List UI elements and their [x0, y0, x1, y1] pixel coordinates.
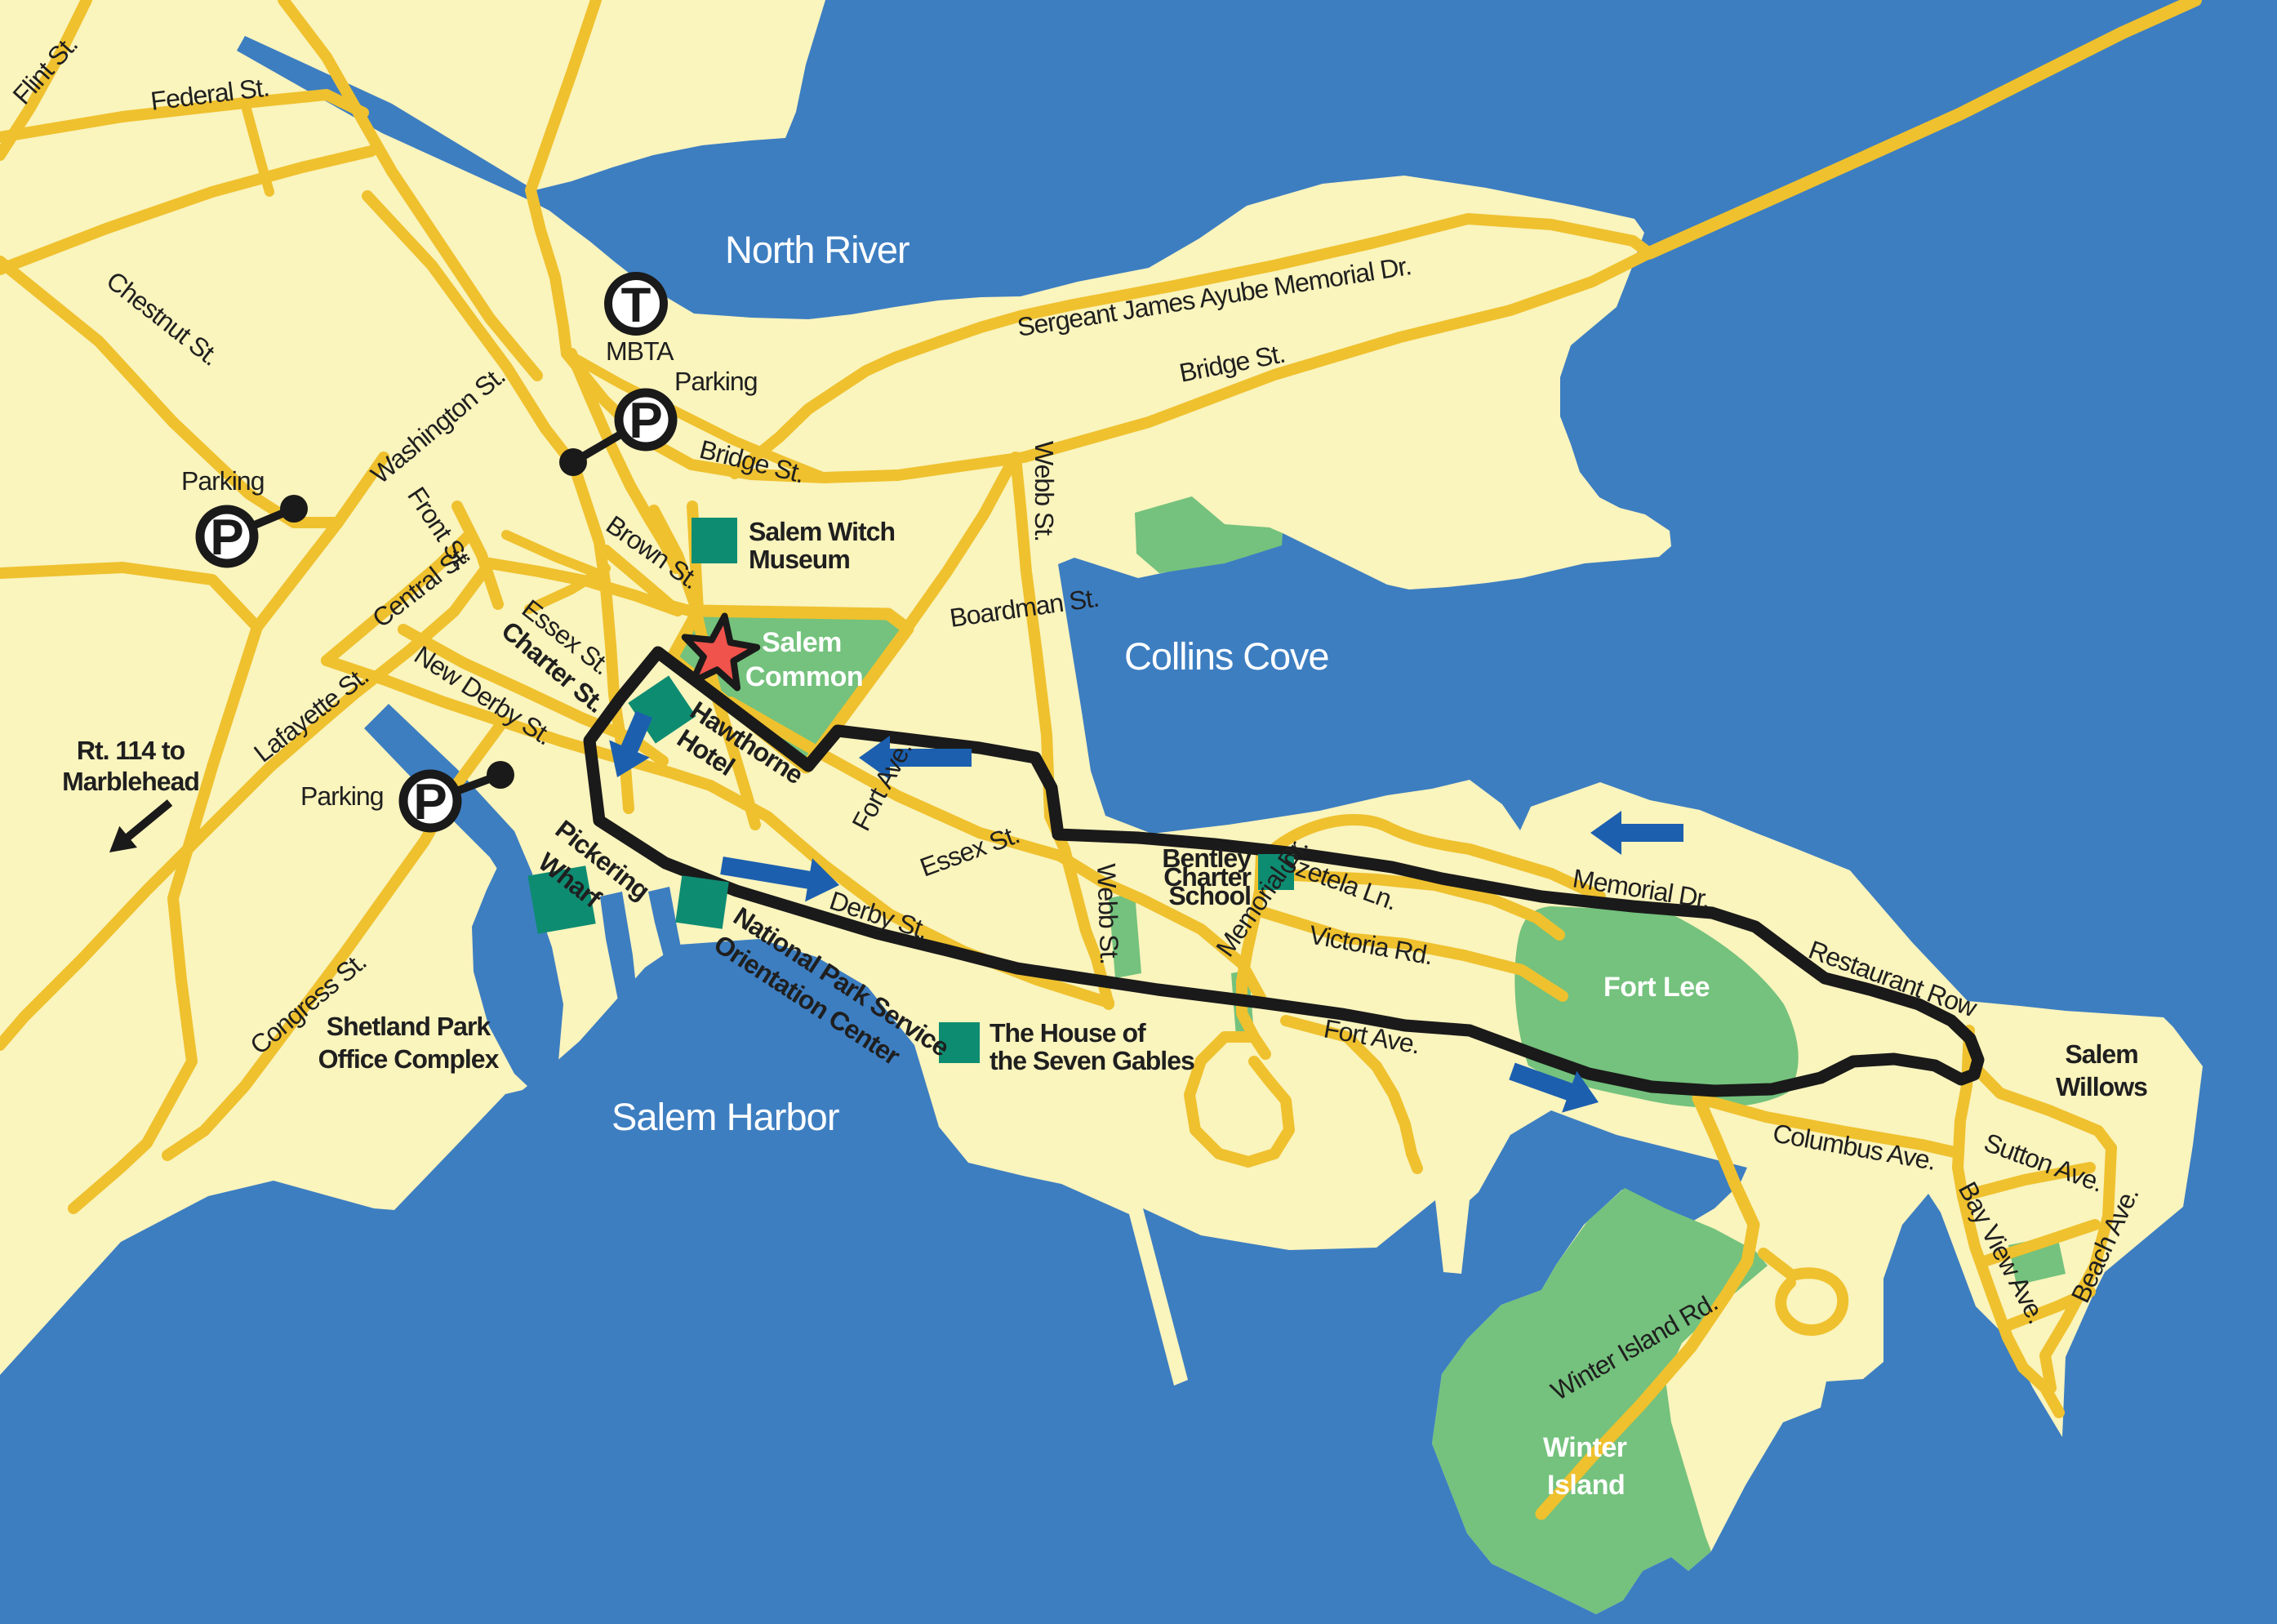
svg-text:Winter: Winter [1543, 1432, 1627, 1463]
svg-text:P: P [210, 509, 243, 566]
svg-text:Rt. 114 to: Rt. 114 to [77, 736, 185, 765]
svg-text:Marblehead: Marblehead [62, 767, 199, 796]
svg-text:MBTA: MBTA [606, 336, 674, 366]
svg-text:Museum: Museum [749, 545, 850, 574]
svg-text:Parking: Parking [181, 466, 265, 496]
svg-text:the Seven Gables: the Seven Gables [990, 1046, 1194, 1075]
svg-text:P: P [629, 393, 662, 449]
svg-text:Office Complex: Office Complex [318, 1044, 500, 1074]
svg-text:Salem Witch: Salem Witch [749, 517, 895, 546]
svg-text:Webb St.: Webb St. [1030, 441, 1059, 541]
svg-text:Common: Common [745, 661, 863, 692]
svg-text:Fort Lee: Fort Lee [1603, 972, 1710, 1003]
svg-text:Salem: Salem [2065, 1039, 2137, 1069]
svg-text:Salem: Salem [762, 627, 842, 658]
svg-text:Parking: Parking [300, 781, 384, 811]
svg-text:Webb St.: Webb St. [1092, 863, 1124, 964]
svg-text:Shetland Park: Shetland Park [327, 1012, 491, 1041]
svg-text:P: P [413, 774, 447, 830]
svg-text:Salem Harbor: Salem Harbor [611, 1095, 839, 1138]
svg-text:Collins Cove: Collins Cove [1124, 634, 1328, 678]
svg-text:Island: Island [1547, 1470, 1625, 1501]
svg-text:The House of: The House of [990, 1018, 1146, 1048]
svg-text:North River: North River [725, 228, 909, 271]
svg-text:Parking: Parking [674, 367, 758, 396]
svg-text:T: T [621, 278, 652, 332]
svg-text:Willows: Willows [2056, 1072, 2147, 1101]
